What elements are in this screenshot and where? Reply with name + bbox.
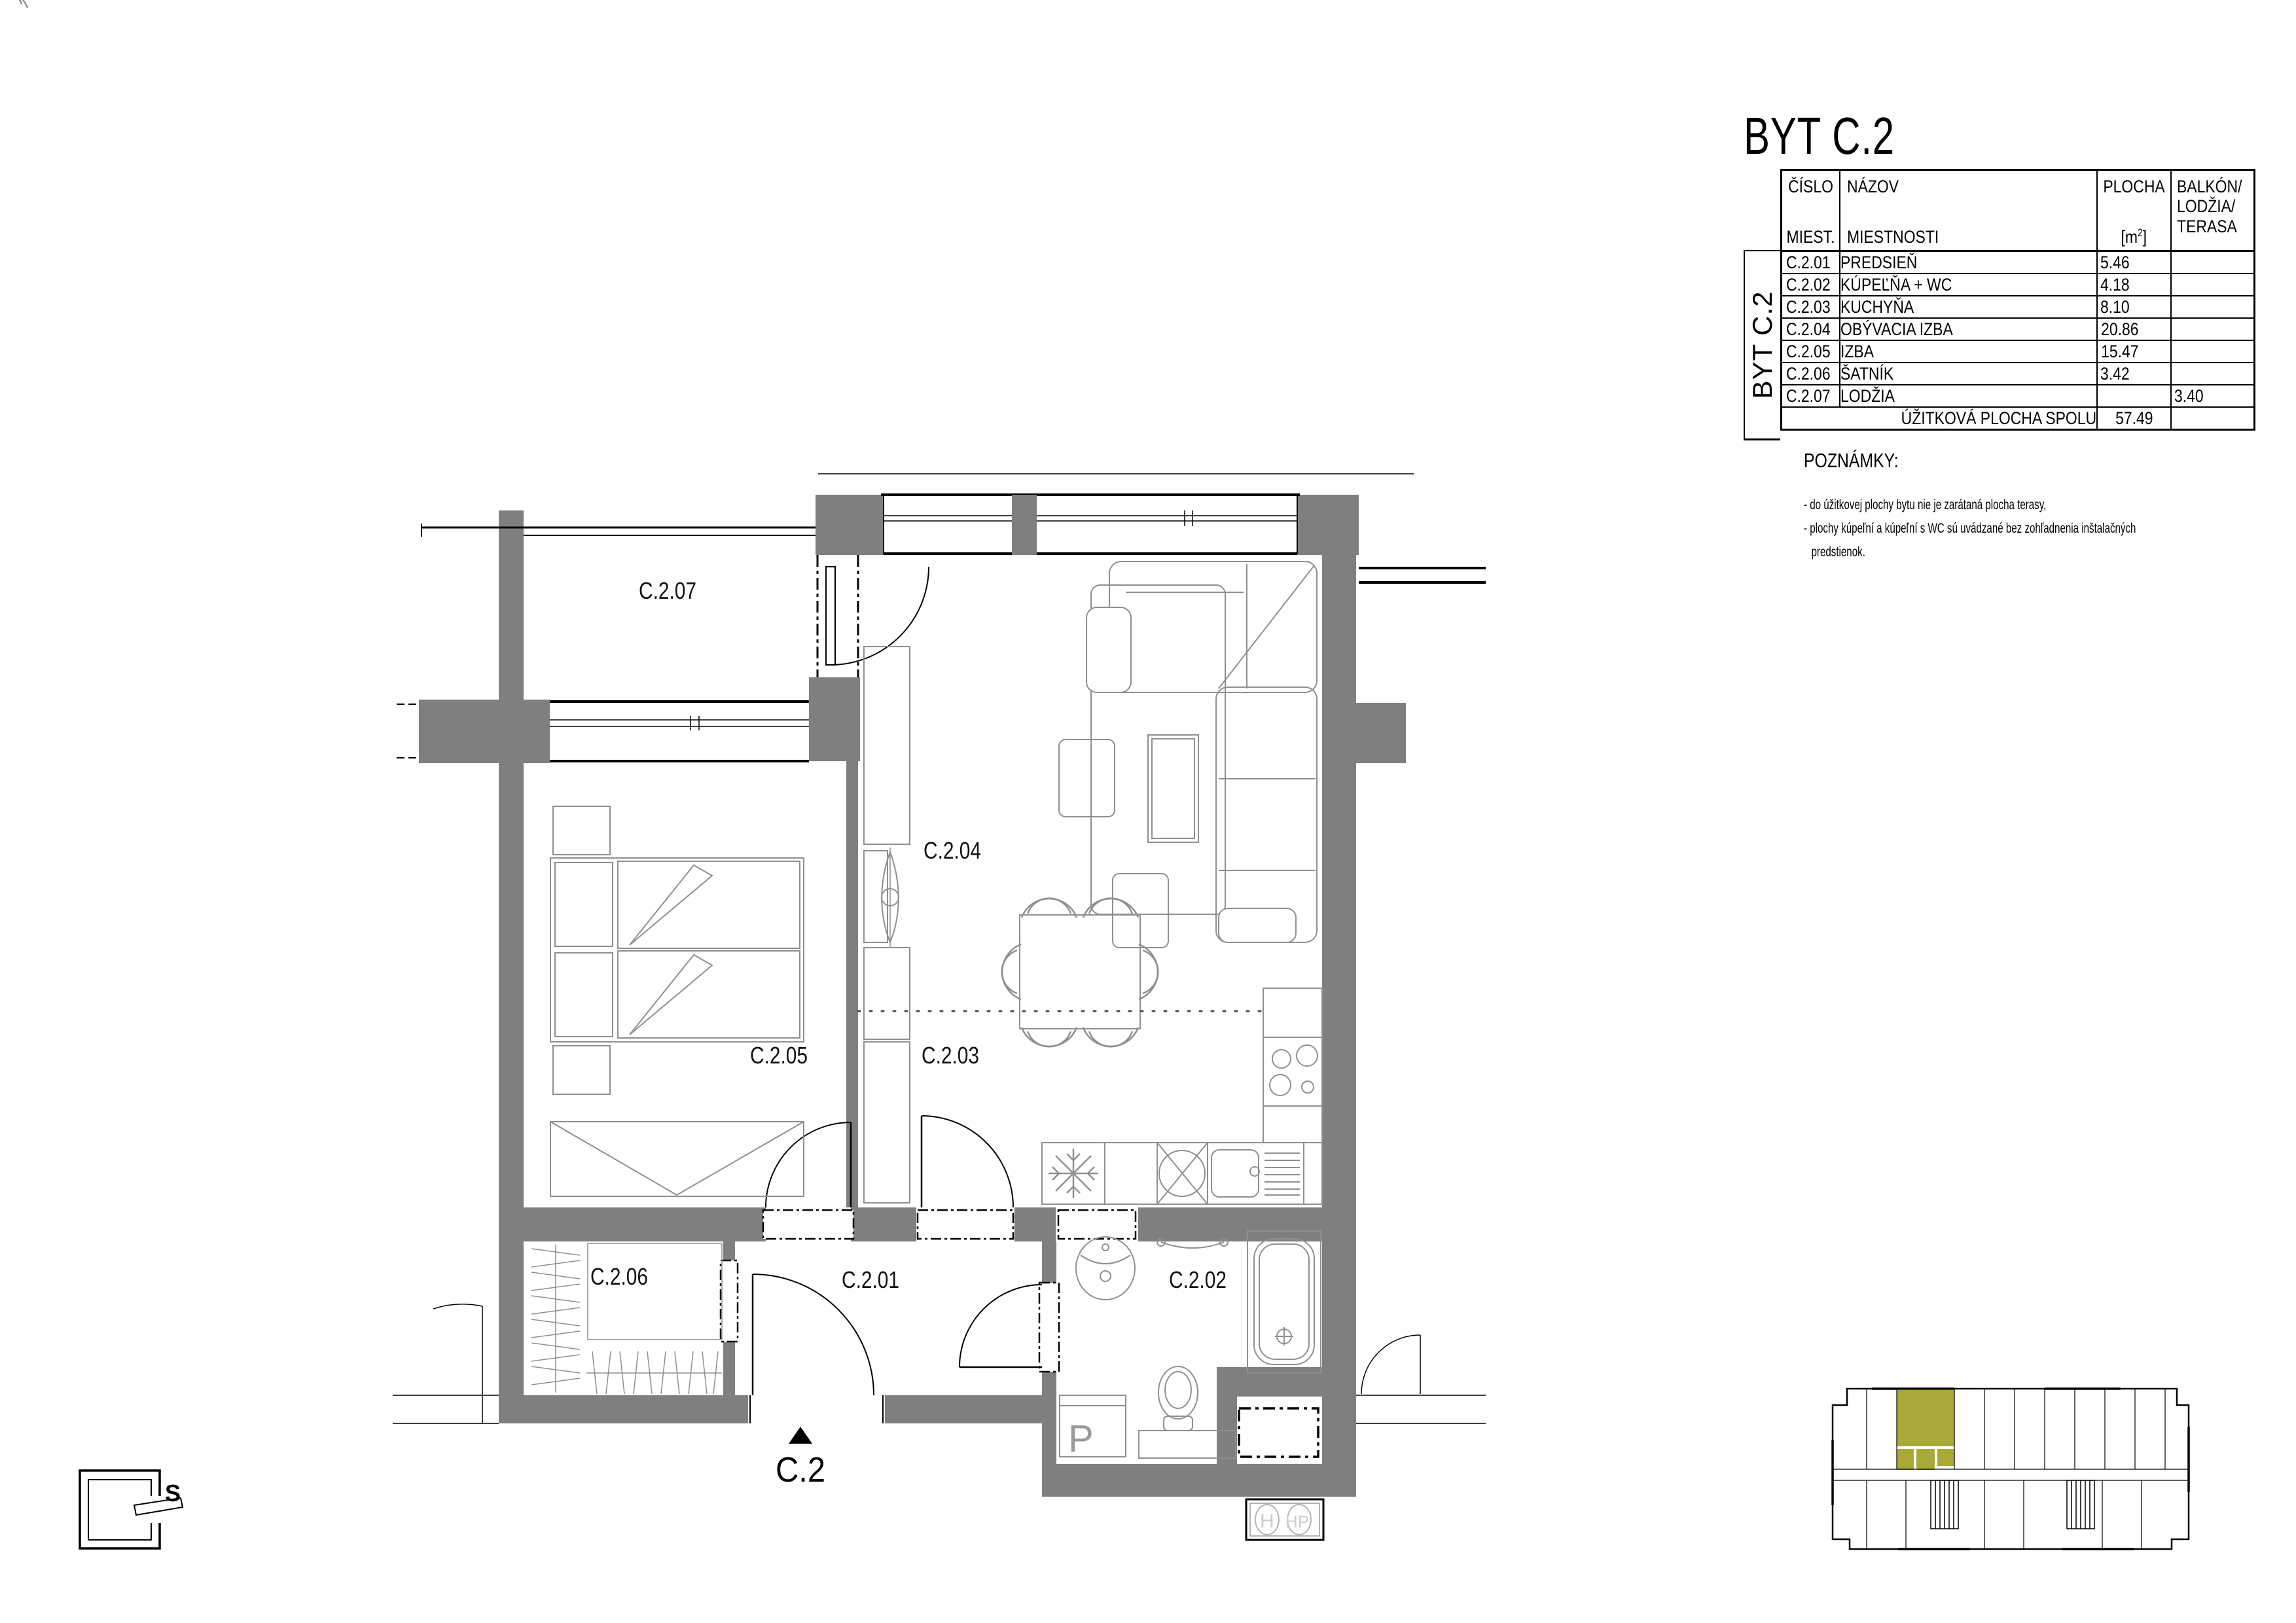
cell-room-area: 5.46 xyxy=(2097,251,2171,274)
bathtub-icon xyxy=(1247,1231,1321,1373)
header-balkon: BALKÓN/ LODŽIA/ TERASA xyxy=(2171,170,2255,251)
cell-room-balcony xyxy=(2171,363,2255,385)
cell-room-no: C.2.06 xyxy=(1782,363,1840,385)
key-plan-highlight xyxy=(1897,1390,1954,1470)
washbasin-icon xyxy=(1076,1237,1135,1300)
cell-room-no: C.2.05 xyxy=(1782,340,1840,363)
bedroom-furniture xyxy=(550,806,804,1196)
page-title: BYT C.2 xyxy=(1744,110,1895,162)
table-sidebar: BYT C.2 xyxy=(1744,250,1780,440)
cell-room-area xyxy=(2097,385,2171,407)
cell-room-no: C.2.04 xyxy=(1782,318,1840,340)
meter-label-h: H xyxy=(1260,1510,1274,1532)
living-room-furniture xyxy=(864,562,1317,1203)
cell-room-no: C.2.03 xyxy=(1782,296,1840,318)
header-plocha: PLOCHA [m2] xyxy=(2097,170,2171,251)
meter-box xyxy=(1246,1499,1323,1540)
cell-total-balcony xyxy=(2171,407,2255,430)
cell-room-name: PREDSIEŇ xyxy=(1840,251,2097,274)
table-row: C.2.04 OBÝVACIA IZBA 20.86 xyxy=(1782,318,2255,340)
washer-label: P xyxy=(1068,1418,1094,1460)
installation-shaft xyxy=(1239,1408,1318,1457)
north-label: S xyxy=(165,1480,181,1507)
room-label-c203: C.2.03 xyxy=(922,1042,979,1069)
room-label-c202: C.2.02 xyxy=(1169,1266,1227,1293)
cell-room-balcony: 3.40 xyxy=(2171,385,2255,407)
cell-room-name: OBÝVACIA IZBA xyxy=(1840,318,2097,340)
cell-room-area: 20.86 xyxy=(2097,318,2171,340)
table-row: C.2.01 PREDSIEŇ 5.46 xyxy=(1782,251,2255,274)
entrance-marker: C.2 xyxy=(776,1427,825,1489)
key-plan xyxy=(1833,1389,2189,1549)
note-line: - do úžitkovej plochy bytu nie je zaráta… xyxy=(1804,493,2096,517)
walls xyxy=(419,495,1406,1497)
lodzia-glass-door xyxy=(817,555,929,677)
cell-room-no: C.2.01 xyxy=(1782,251,1840,274)
room-table: ČÍSLO MIEST. NÁZOV MIESTNOSTI PLOCHA [m2… xyxy=(1780,169,2255,431)
table-footer-row: ÚŽITKOVÁ PLOCHA SPOLU 57.49 xyxy=(1782,407,2255,430)
apartment-card-page: P H HP C.2.01 C.2.02 C.2.03 C.2.04 C.2.0… xyxy=(0,0,2296,1623)
sink-icon xyxy=(1211,1150,1300,1197)
cell-room-name: IZBA xyxy=(1840,340,2097,363)
cell-room-name: ŠATNÍK xyxy=(1840,363,2097,385)
table-row: C.2.03 KUCHYŇA 8.10 xyxy=(1782,296,2255,318)
room-label-c204: C.2.04 xyxy=(924,837,981,864)
cell-total-area: 57.49 xyxy=(2097,407,2171,430)
note-line: - plochy kúpeľní a kúpeľní s WC sú uvádz… xyxy=(1804,517,2096,541)
cell-room-area: 3.42 xyxy=(2097,363,2171,385)
header-cislo: ČÍSLO MIEST. xyxy=(1782,170,1840,251)
table-row: C.2.06 ŠATNÍK 3.42 xyxy=(1782,363,2255,385)
north-arrow-icon: S xyxy=(80,1471,183,1548)
cell-room-name: LODŽIA xyxy=(1840,385,2097,407)
cell-room-balcony xyxy=(2171,251,2255,274)
room-label-c205: C.2.05 xyxy=(750,1042,808,1069)
room-label-c207: C.2.07 xyxy=(639,577,696,604)
entrance-arrow-icon xyxy=(789,1427,812,1444)
table-sidebar-label: BYT C.2 xyxy=(1747,291,1778,399)
table-row: C.2.05 IZBA 15.47 xyxy=(1782,340,2255,363)
windows-and-exterior xyxy=(393,474,1486,1423)
cell-room-area: 15.47 xyxy=(2097,340,2171,363)
cell-room-name: KÚPEĽŇA + WC xyxy=(1840,274,2097,296)
entrance-label: C.2 xyxy=(776,1450,825,1489)
cell-room-balcony xyxy=(2171,296,2255,318)
note-line: predstienok. xyxy=(1804,541,2096,564)
fridge-icon xyxy=(1049,1149,1098,1198)
cell-total-label: ÚŽITKOVÁ PLOCHA SPOLU xyxy=(1782,407,2098,430)
notes-heading: POZNÁMKY: xyxy=(1804,449,2128,473)
cell-room-area: 4.18 xyxy=(2097,274,2171,296)
cell-room-balcony xyxy=(2171,318,2255,340)
table-row: C.2.07 LODŽIA 3.40 xyxy=(1782,385,2255,407)
cell-room-no: C.2.07 xyxy=(1782,385,1840,407)
stove-icon xyxy=(1157,1143,1208,1204)
cell-room-balcony xyxy=(2171,340,2255,363)
cell-room-balcony xyxy=(2171,274,2255,296)
table-row: C.2.02 KÚPEĽŇA + WC 4.18 xyxy=(1782,274,2255,296)
kitchen-counter xyxy=(1042,988,1322,1204)
header-nazov: NÁZOV MIESTNOSTI xyxy=(1840,170,2097,251)
table-header-row: ČÍSLO MIEST. NÁZOV MIESTNOSTI PLOCHA [m2… xyxy=(1782,170,2255,251)
notes-section: POZNÁMKY: - do úžitkovej plochy bytu nie… xyxy=(1804,449,2210,564)
room-label-c206: C.2.06 xyxy=(590,1263,648,1290)
room-label-c201: C.2.01 xyxy=(842,1266,899,1293)
key-plan-stairs xyxy=(1931,1480,2094,1529)
cell-room-area: 8.10 xyxy=(2097,296,2171,318)
cell-room-no: C.2.02 xyxy=(1782,274,1840,296)
meter-label-hp: HP xyxy=(1285,1512,1309,1531)
cell-room-name: KUCHYŇA xyxy=(1840,296,2097,318)
